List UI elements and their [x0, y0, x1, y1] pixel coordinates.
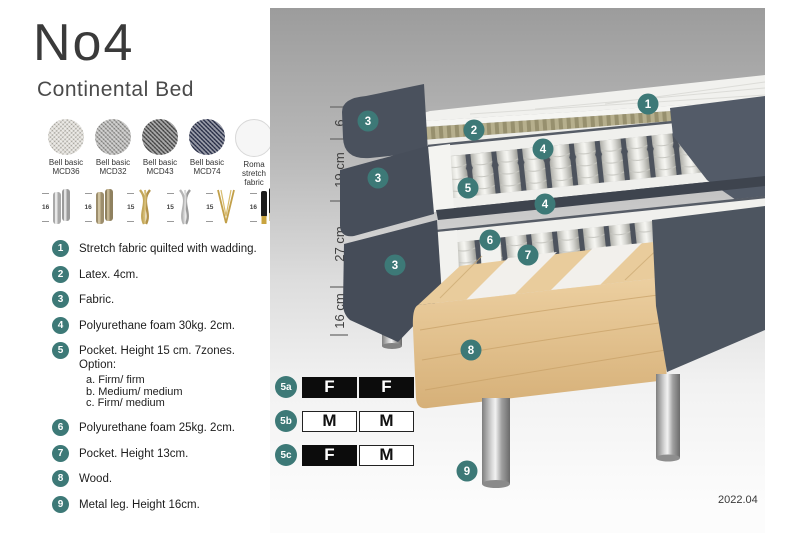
- hairpin-leg-icon: [214, 186, 238, 228]
- firmness-badge: 5a: [275, 376, 297, 398]
- spec-text: Pocket. Height 15 cm. 7zones. Option: a.…: [79, 342, 268, 411]
- spec-number-badge: 1: [52, 240, 69, 257]
- spec-number-badge: 5: [52, 342, 69, 359]
- svg-text:3: 3: [375, 173, 381, 185]
- bottom-fabric-right: [652, 206, 765, 372]
- callout-4b: 4: [535, 194, 556, 215]
- callout-4a: 4: [533, 139, 554, 160]
- fabric-swatch-label: Bell basicMCD32: [96, 158, 130, 176]
- firmness-cell: F: [359, 377, 414, 398]
- svg-text:5: 5: [465, 183, 472, 195]
- svg-text:4: 4: [542, 199, 549, 211]
- firmness-row-5b: 5b M M: [275, 410, 414, 432]
- fabric-swatch-circle: [48, 119, 84, 155]
- spec-number-badge: 9: [52, 496, 69, 513]
- cylinder-chrome-leg-icon: [50, 186, 73, 228]
- fabric-swatch-mcd36: Bell basicMCD36: [44, 119, 88, 187]
- spec-number-badge: 2: [52, 266, 69, 283]
- spec-item-1: 1 Stretch fabric quilted with wadding.: [52, 240, 268, 257]
- spec-item-8: 8 Wood.: [52, 470, 268, 487]
- callout-3a: 3: [358, 111, 379, 132]
- leg-options: 16 16 15 15: [42, 186, 278, 228]
- pocket-options: a. Firm/ firm b. Medium/ medium c. Firm/…: [86, 375, 268, 410]
- middle-fabric-side: [340, 146, 434, 236]
- spec-text: Latex. 4cm.: [79, 266, 138, 282]
- page-title: No4: [33, 16, 134, 71]
- spec-list: 1 Stretch fabric quilted with wadding. 2…: [52, 240, 268, 521]
- svg-text:4: 4: [540, 144, 547, 156]
- svg-text:8: 8: [468, 345, 475, 357]
- spec-item-2: 2 Latex. 4cm.: [52, 266, 268, 283]
- callout-6: 6: [480, 230, 501, 251]
- firmness-cell: M: [302, 411, 357, 432]
- leg-option-twist-silver: 15: [167, 186, 195, 228]
- leg-height-label: 15: [167, 194, 174, 221]
- leg-height-label: 15: [127, 194, 134, 221]
- leg-height-label: 16: [250, 194, 257, 221]
- spec-item-9: 9 Metal leg. Height 16cm.: [52, 496, 268, 513]
- fabric-swatch-label: Bell basicMCD74: [190, 158, 224, 176]
- firmness-cell: F: [302, 377, 357, 398]
- version-label: 2022.04: [718, 494, 758, 506]
- twist-gold-leg-icon: [135, 186, 155, 228]
- spec-number-badge: 3: [52, 291, 69, 308]
- firmness-cell: M: [359, 445, 414, 466]
- leg-option-bronze: 16: [85, 186, 116, 228]
- leg-height-label: 16: [85, 194, 92, 221]
- firmness-badge: 5b: [275, 410, 297, 432]
- leg-height-label: 15: [206, 194, 213, 221]
- fabric-swatch-circle: [95, 119, 131, 155]
- metal-leg-front: [482, 398, 510, 488]
- page-subtitle: Continental Bed: [37, 78, 194, 102]
- firmness-table: 5a F F 5b M M 5c F M: [275, 376, 414, 478]
- firmness-badge: 5c: [275, 444, 297, 466]
- callout-9: 9: [457, 461, 478, 482]
- spec-text: Polyurethane foam 30kg. 2cm.: [79, 317, 235, 333]
- svg-text:3: 3: [392, 260, 398, 272]
- svg-text:7: 7: [525, 250, 531, 262]
- firmness-row-5a: 5a F F: [275, 376, 414, 398]
- svg-text:2: 2: [471, 125, 477, 137]
- spec-text: Stretch fabric quilted with wadding.: [79, 240, 257, 256]
- leg-option-chrome: 16: [42, 186, 73, 228]
- product-sheet: No4 Continental Bed Bell basicMCD36 Bell…: [0, 0, 800, 533]
- svg-text:1: 1: [645, 99, 652, 111]
- leg-option-hairpin: 15: [206, 186, 238, 228]
- spec-item-7: 7 Pocket. Height 13cm.: [52, 445, 268, 462]
- cylinder-bronze-leg-icon: [93, 186, 116, 228]
- spec-text: Wood.: [79, 470, 112, 486]
- spec-text: Fabric.: [79, 291, 114, 307]
- spec-number-badge: 4: [52, 317, 69, 334]
- twist-silver-leg-icon: [175, 186, 195, 228]
- firmness-cell: M: [359, 411, 414, 432]
- callout-5: 5: [458, 178, 479, 199]
- fabric-swatch-label: Bell basicMCD43: [143, 158, 177, 176]
- spec-item-3: 3 Fabric.: [52, 291, 268, 308]
- callout-8: 8: [461, 340, 482, 361]
- fabric-swatch-circle: [189, 119, 225, 155]
- metal-leg-right: [656, 374, 680, 462]
- spec-text: Polyurethane foam 25kg. 2cm.: [79, 419, 235, 435]
- callout-3c: 3: [385, 255, 406, 276]
- topper-fabric-corner: [342, 84, 428, 158]
- svg-text:3: 3: [365, 116, 371, 128]
- svg-text:6: 6: [487, 235, 493, 247]
- spec-number-badge: 7: [52, 445, 69, 462]
- callout-2: 2: [464, 120, 485, 141]
- fabric-swatch-circle: [142, 119, 178, 155]
- svg-text:9: 9: [464, 466, 470, 478]
- leg-height-label: 16: [42, 194, 49, 221]
- spec-item-4: 4 Polyurethane foam 30kg. 2cm.: [52, 317, 268, 334]
- firmness-cell: F: [302, 445, 357, 466]
- fabric-swatch-mcd32: Bell basicMCD32: [91, 119, 135, 187]
- spec-item-5: 5 Pocket. Height 15 cm. 7zones. Option: …: [52, 342, 268, 411]
- callout-7: 7: [518, 245, 539, 266]
- firmness-row-5c: 5c F M: [275, 444, 414, 466]
- leg-option-twist-gold: 15: [127, 186, 155, 228]
- callout-1: 1: [638, 94, 659, 115]
- fabric-swatch-circle: [235, 119, 273, 157]
- fabric-swatch-mcd74: Bell basicMCD74: [185, 119, 229, 187]
- callout-3b: 3: [368, 168, 389, 189]
- spec-text: Metal leg. Height 16cm.: [79, 496, 200, 512]
- fabric-swatch-mcd43: Bell basicMCD43: [138, 119, 182, 187]
- spec-text: Pocket. Height 13cm.: [79, 445, 188, 461]
- spec-number-badge: 8: [52, 470, 69, 487]
- spec-number-badge: 6: [52, 419, 69, 436]
- spec-item-6: 6 Polyurethane foam 25kg. 2cm.: [52, 419, 268, 436]
- fabric-swatch-label: Bell basicMCD36: [49, 158, 83, 176]
- fabric-swatches: Bell basicMCD36 Bell basicMCD32 Bell bas…: [44, 119, 276, 187]
